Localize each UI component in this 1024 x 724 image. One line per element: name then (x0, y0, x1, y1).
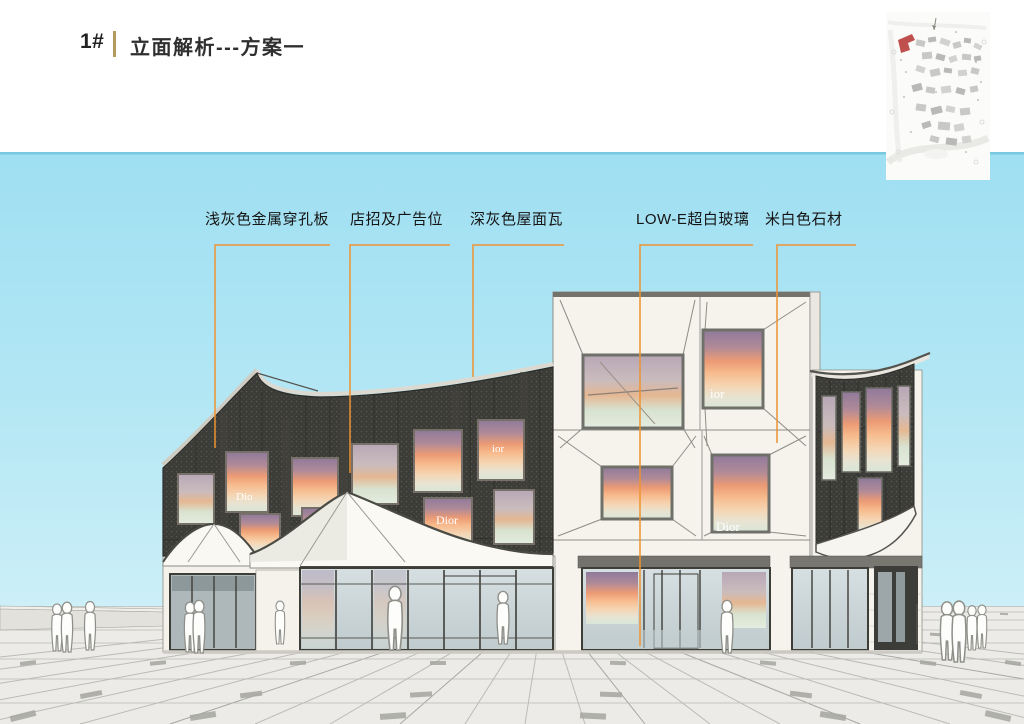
annotation-label-perforated-panel: 浅灰色金属穿孔板 (205, 208, 329, 229)
distant-wall (0, 606, 166, 630)
ad-window (583, 355, 683, 428)
presentation-slide: 1# 立面解析---方案一 (0, 0, 1024, 724)
brand-sign: Dior (716, 519, 741, 534)
tower-storefront (578, 556, 770, 650)
wing-storefront (790, 556, 922, 650)
annotation-label-stone: 米白色石材 (765, 208, 843, 229)
brand-sign: Dio (236, 491, 253, 503)
white-tower: ior Dior (553, 292, 820, 652)
annotation-label-lowe-glass: LOW-E超白玻璃 (636, 208, 749, 229)
site-plan-inset (886, 12, 990, 180)
annotation-label-roof-tile: 深灰色屋面瓦 (470, 208, 563, 229)
ad-window (602, 467, 672, 519)
ad-window: ior (703, 330, 763, 408)
brand-sign: ior (492, 443, 505, 455)
ad-window: Dior (712, 455, 769, 534)
annotation-label-signage: 店招及广告位 (350, 208, 443, 229)
brand-sign: Dior (436, 513, 458, 527)
facade-rendering: ior Dior (0, 0, 1024, 724)
brand-sign: ior (710, 386, 725, 401)
left-storefronts (170, 566, 553, 652)
